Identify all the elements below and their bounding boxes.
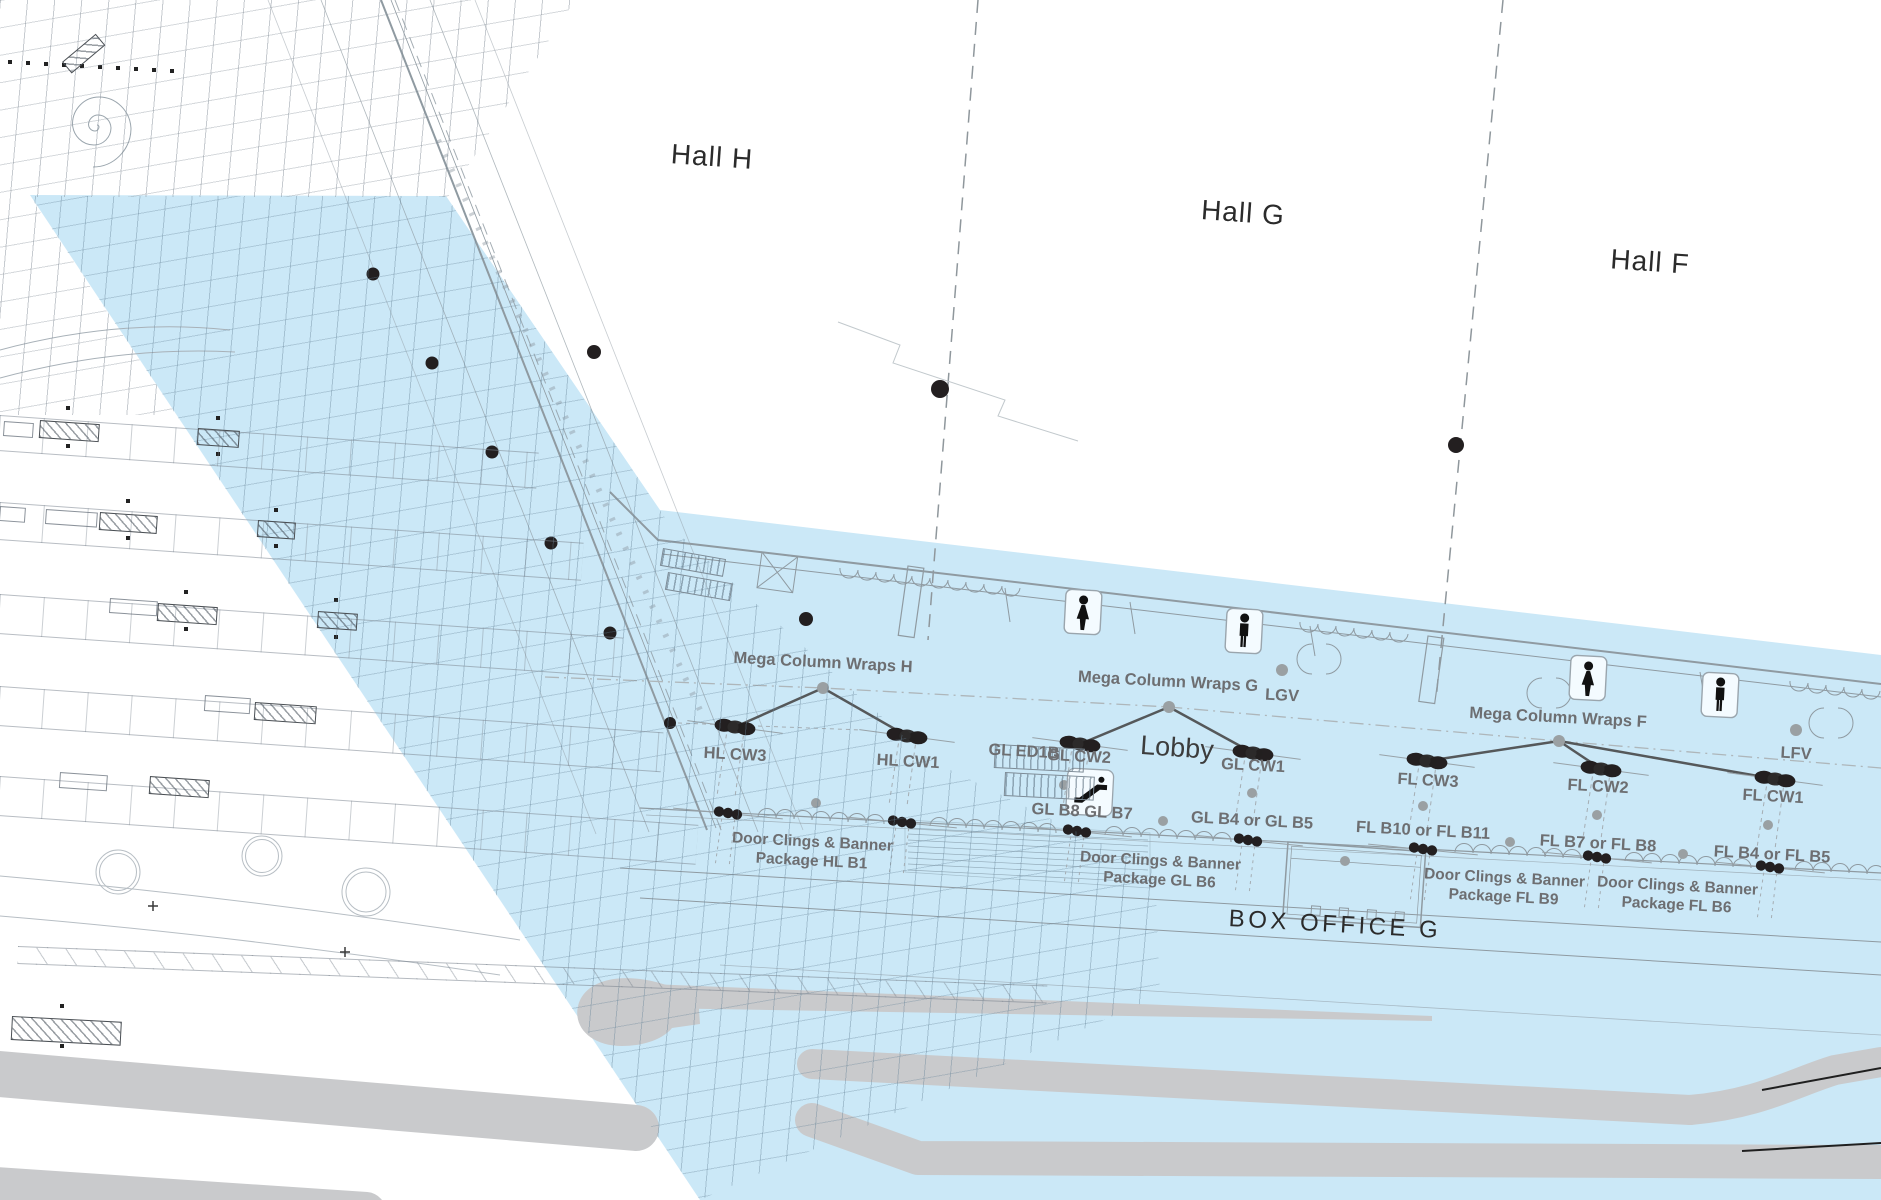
hall-h-label[interactable]: Hall H: [670, 138, 754, 176]
floor-plan-map: Hall H Hall G Hall F Lobby BOX OFFICE G …: [0, 0, 1881, 1200]
lfv-label[interactable]: LFV: [1780, 744, 1812, 765]
planter: [197, 428, 240, 448]
fl-cw1-label[interactable]: FL CW1: [1742, 786, 1804, 808]
hl-cw1-label[interactable]: HL CW1: [876, 751, 940, 773]
lobby-label: Lobby: [1139, 730, 1215, 766]
restroom-women-icon: [1569, 655, 1607, 701]
spiral-feature: [73, 97, 132, 167]
separator-hall-g-f: [1436, 0, 1503, 700]
gl-cw2-label[interactable]: GL CW2: [1047, 746, 1112, 768]
escalator-ramp: [1004, 772, 1095, 801]
restroom-men-icon: [1701, 672, 1739, 718]
planter: [257, 520, 296, 540]
restroom-men-icon: [1225, 608, 1263, 654]
lgv-dot: [1276, 664, 1288, 676]
hl-cw3-label[interactable]: HL CW3: [703, 744, 767, 766]
lfv-dot: [1790, 724, 1802, 736]
site-rect: [204, 695, 251, 714]
lgv-label[interactable]: LGV: [1265, 686, 1300, 707]
fl-cw2-label[interactable]: FL CW2: [1567, 776, 1629, 798]
hall-wall-outline: [838, 322, 1078, 441]
site-rect: [0, 506, 26, 523]
planter: [317, 611, 358, 631]
hall-f-label[interactable]: Hall F: [1609, 243, 1690, 280]
map-canvas: [0, 0, 1881, 1200]
fl-cw3-label[interactable]: FL CW3: [1397, 770, 1459, 792]
restroom-women-icon: [1064, 589, 1102, 635]
gl-cw1-label[interactable]: GL CW1: [1221, 755, 1286, 777]
site-rect: [3, 421, 34, 438]
survey-markers: [148, 901, 350, 957]
hall-g-label[interactable]: Hall G: [1200, 194, 1286, 232]
site-rect: [59, 772, 108, 791]
